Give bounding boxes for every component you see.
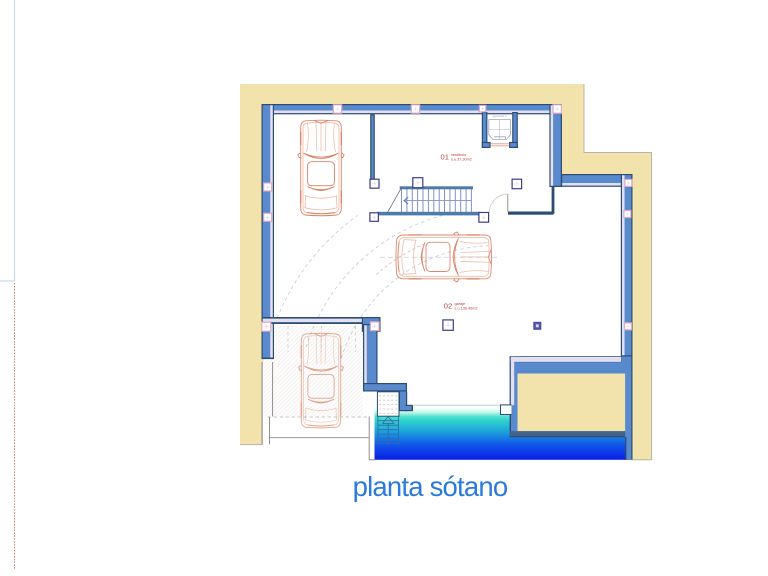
svg-text:s.u.37,30m2: s.u.37,30m2 (451, 158, 472, 162)
svg-text:01: 01 (441, 153, 449, 162)
svg-text:02: 02 (444, 301, 452, 310)
svg-text:garaje: garaje (455, 302, 466, 306)
svg-text:vestíbulo: vestíbulo (451, 153, 466, 157)
svg-text:planta sótano: planta sótano (353, 471, 508, 502)
svg-text:ascensor 1: ascensor 1 (493, 114, 508, 118)
svg-text:s.u.136,45m2: s.u.136,45m2 (455, 306, 478, 310)
